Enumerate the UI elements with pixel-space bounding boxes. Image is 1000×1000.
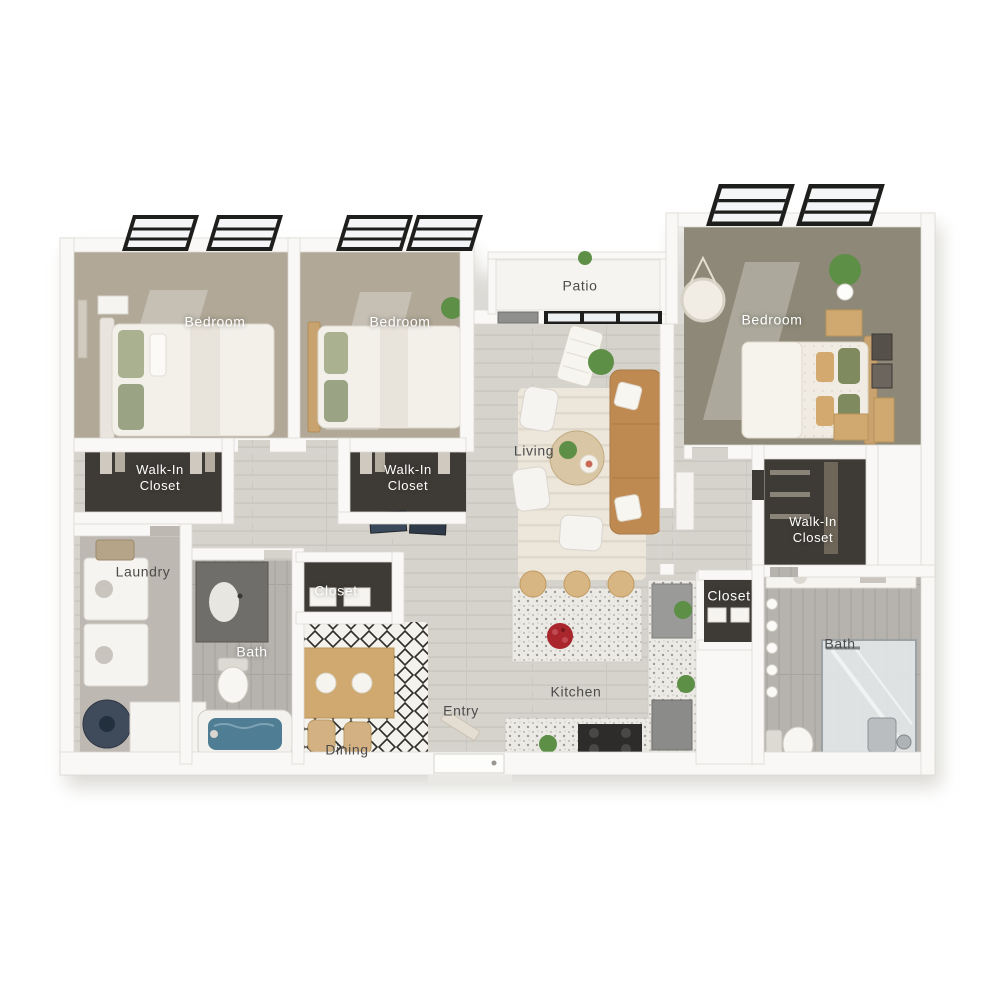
- door-opening: [264, 550, 292, 560]
- desk: [874, 398, 894, 442]
- floor-plan-rendering: [0, 0, 1000, 1000]
- bar-stool: [608, 571, 634, 597]
- entry-step: [428, 775, 512, 786]
- patio-parapet: [488, 252, 668, 259]
- floor-plan: Patio Bedroom Bedroom Bedroom Walk-In Cl…: [0, 0, 1000, 1000]
- tub-faucet: [210, 730, 218, 738]
- door-opening: [660, 508, 674, 564]
- wall-art: [78, 300, 87, 358]
- table-plant: [559, 441, 577, 459]
- wall-art: [872, 364, 892, 388]
- room-label-entry: Entry: [443, 702, 479, 720]
- door-opening: [306, 440, 338, 452]
- room-label-walk-in-closet-middle: Walk-In Closet: [373, 462, 443, 495]
- armchair: [519, 385, 560, 432]
- bathtub: [198, 710, 292, 758]
- room-label-walk-in-closet-left: Walk-In Closet: [125, 462, 195, 495]
- place-setting: [316, 673, 336, 693]
- sofa: [610, 370, 662, 534]
- laundry-basket: [96, 540, 134, 560]
- dining-area: [293, 622, 428, 760]
- shower-drain: [897, 735, 911, 749]
- room-label-kitchen: Kitchen: [551, 683, 602, 701]
- room-label-bath-right: Bath: [824, 635, 855, 653]
- nightstand: [98, 296, 128, 314]
- potted-plant: [674, 601, 692, 619]
- room-label-bedroom-right: Bedroom: [741, 311, 802, 329]
- washer-dryer: [84, 540, 148, 686]
- planter-pot: [837, 284, 853, 300]
- door-opening: [692, 447, 728, 459]
- vanity: [196, 562, 268, 642]
- laundry-counter: [130, 702, 206, 754]
- room-label-closet-right: Closet: [707, 587, 750, 605]
- door-opening: [770, 567, 798, 577]
- room-label-dining: Dining: [325, 741, 368, 759]
- door-opening: [752, 470, 764, 500]
- door-opening: [238, 440, 270, 452]
- kitchen-counter-right: [648, 580, 696, 754]
- bar-stool: [564, 571, 590, 597]
- door-opening: [150, 526, 180, 536]
- potted-plant: [677, 675, 695, 693]
- room-label-walk-in-closet-right: Walk-In Closet: [778, 514, 848, 547]
- wall-art: [872, 334, 892, 360]
- kitchen-island: [512, 571, 642, 662]
- flower-bowl: [547, 623, 573, 649]
- room-label-closet-middle: Closet: [314, 582, 357, 600]
- potted-plant: [588, 349, 614, 375]
- console-table: [676, 472, 694, 530]
- shower: [822, 640, 916, 758]
- bed: [308, 322, 462, 432]
- armchair: [511, 466, 551, 512]
- bar-stool: [520, 571, 546, 597]
- place-setting: [352, 673, 372, 693]
- front-door: [428, 754, 512, 786]
- throw-pillow: [613, 381, 642, 410]
- shower-seat: [868, 718, 896, 752]
- room-label-bedroom-middle: Bedroom: [369, 313, 430, 331]
- door-handle: [492, 761, 497, 766]
- dining-table: [300, 648, 394, 718]
- patio-plant: [578, 251, 592, 265]
- room-label-bath-left: Bath: [236, 643, 267, 661]
- storage-door: [498, 312, 538, 323]
- room-label-laundry: Laundry: [116, 563, 171, 581]
- oven: [652, 700, 692, 750]
- room-label-living: Living: [514, 442, 554, 460]
- throw-pillow: [614, 494, 642, 522]
- armchair: [559, 515, 603, 552]
- patio-sliding-door: [544, 311, 662, 324]
- nightstand: [826, 310, 862, 336]
- room-label-patio: Patio: [563, 277, 598, 295]
- toilet: [218, 658, 248, 703]
- room-label-bedroom-left: Bedroom: [184, 313, 245, 331]
- nightstand: [834, 414, 868, 440]
- coffee-table: [550, 431, 604, 485]
- potted-plant: [829, 254, 861, 286]
- potted-plant: [539, 735, 557, 753]
